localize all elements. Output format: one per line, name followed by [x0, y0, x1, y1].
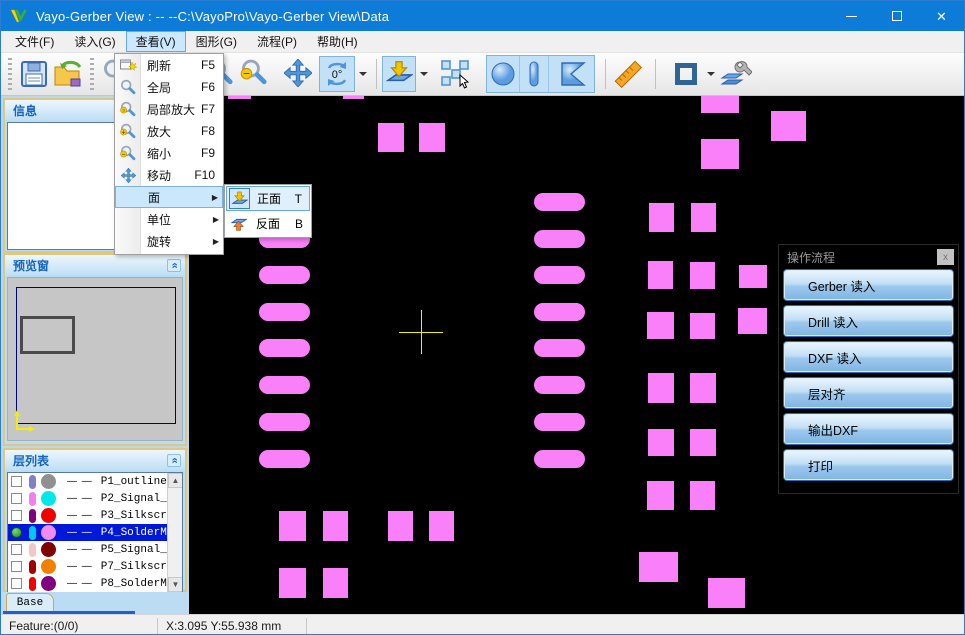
svg-text:0°: 0°	[332, 69, 343, 81]
svg-text:▫: ▫	[122, 107, 124, 114]
menu-item-面[interactable]: 面 ▶	[115, 186, 223, 208]
menu-item-单位[interactable]: 单位 ▶	[115, 208, 223, 230]
layer-row[interactable]: — — P1_outline	[8, 473, 182, 490]
layer-checkbox[interactable]	[11, 561, 22, 572]
layer-checkbox[interactable]	[11, 493, 22, 504]
menu-item-shortcut: F7	[201, 102, 215, 116]
layer-color-pill	[29, 577, 36, 591]
rotate-icon: 0°	[322, 60, 352, 88]
menu-item-label: 旋转	[147, 233, 171, 250]
layer-color-pill	[29, 543, 36, 557]
scroll-down-icon[interactable]: ▼	[168, 577, 183, 592]
ruler-icon	[612, 58, 644, 90]
gerber-pad-oval	[534, 230, 585, 248]
menu-item-shortcut: F8	[201, 124, 215, 138]
gerber-pad-square	[343, 96, 364, 99]
layer-name: P5_Signal_	[101, 544, 167, 556]
gerber-pad-square	[648, 429, 674, 456]
menu-item-缩小[interactable]: − 缩小 F9	[115, 142, 223, 164]
layer-wrench-icon	[720, 59, 752, 89]
layer-color-dot	[41, 474, 56, 489]
layer-list-scrollbar[interactable]: ▲ ▼	[167, 473, 182, 592]
gerber-pad-oval	[534, 303, 585, 321]
gerber-pad-square	[378, 123, 404, 152]
gerber-pad-square	[639, 552, 678, 582]
layer-name: P8_SolderM	[101, 578, 167, 590]
app-logo-icon	[9, 9, 28, 24]
flip-front-icon	[229, 188, 250, 209]
gerber-pad-square	[647, 481, 674, 510]
preview-viewport[interactable]	[7, 277, 183, 441]
toolbar-separator	[655, 59, 656, 89]
gerber-pad-square	[771, 111, 806, 141]
flow-panel-close-icon: x	[943, 252, 948, 263]
window-title: Vayo-Gerber View : -- --C:\VayoPro\Vayo-…	[36, 9, 389, 24]
layer-color-dot	[41, 542, 56, 557]
menu-item-label: 全局	[147, 79, 171, 96]
gerber-pad-square	[690, 262, 715, 289]
layer-color-pill	[29, 509, 36, 523]
layer-checkbox[interactable]	[11, 544, 22, 555]
layer-color-dot	[41, 525, 56, 540]
gerber-pad-oval	[259, 266, 310, 284]
info-panel-title: 信息	[13, 102, 37, 119]
gerber-pad-square	[708, 578, 745, 608]
svg-text:+: +	[122, 129, 126, 136]
gerber-pad-oval	[259, 450, 310, 468]
collapse-chevron-icon[interactable]: «	[167, 454, 181, 467]
layer-row[interactable]: — — P3_Silkscr	[8, 507, 182, 524]
zoom-fit-icon	[115, 79, 141, 95]
toolbar-separator	[376, 59, 377, 89]
layer-checkbox[interactable]	[11, 578, 22, 589]
flow-buttons: Gerber 读入Drill 读入DXF 读入层对齐输出DXF打印	[779, 269, 958, 481]
menu-item-全局[interactable]: 全局 F6	[115, 76, 223, 98]
flow-button-DXF 读入[interactable]: DXF 读入	[783, 341, 954, 373]
statusbar: Feature:(0/0) X:3.095 Y:55.938 mm	[1, 614, 964, 635]
layer-line-sample: — —	[67, 527, 93, 538]
menubar-item[interactable]: 读入(G)	[64, 31, 125, 52]
layer-row[interactable]: — — P7_Silkscr	[8, 558, 182, 575]
layer-row[interactable]: — — P4_SolderM	[8, 524, 182, 541]
preview-panel-header: 预览窗 «	[5, 255, 185, 275]
statusbar-separator	[157, 618, 158, 634]
menubar-item[interactable]: 文件(F)	[5, 31, 64, 52]
measure-button[interactable]	[611, 56, 645, 92]
gerber-pad-square	[690, 313, 715, 339]
layer-name: P3_Silkscr	[101, 510, 167, 522]
gerber-pad-oval	[534, 193, 585, 211]
gerber-pad-oval	[534, 450, 585, 468]
gerber-pad-square	[739, 265, 767, 288]
shape-tool-group	[486, 55, 595, 93]
menu-item-移动[interactable]: 移动 F10	[115, 164, 223, 186]
submenu-arrow-icon: ▶	[213, 215, 219, 224]
flow-button-层对齐[interactable]: 层对齐	[783, 377, 954, 409]
flow-button-Gerber 读入[interactable]: Gerber 读入	[783, 269, 954, 301]
view-menu: 刷新 F5 全局 F6 ▫ 局部放大 F7 + 放大 F8 − 缩小 F9 移动…	[114, 53, 224, 255]
selection-icon	[440, 59, 470, 89]
zoom-region-icon: ▫	[115, 101, 141, 117]
refresh-icon	[115, 58, 141, 73]
feature-count: Feature:(0/0)	[9, 619, 157, 633]
menubar-item[interactable]: 图形(G)	[186, 31, 247, 52]
gerber-pad-square	[649, 203, 674, 232]
menu-item-刷新[interactable]: 刷新 F5	[115, 54, 223, 76]
submenu-item-正面[interactable]: 正面 T	[226, 186, 310, 211]
gerber-pad-square	[279, 568, 306, 598]
gerber-pad-oval	[534, 339, 585, 357]
frame-tool-button[interactable]	[669, 56, 703, 92]
rotate-dropdown-caret[interactable]	[359, 72, 367, 76]
close-icon: ✕	[936, 10, 947, 23]
gerber-pad-square	[323, 568, 348, 598]
gerber-pad-oval	[534, 413, 585, 431]
svg-text:−: −	[243, 66, 250, 80]
gerber-pad-square	[690, 429, 716, 456]
gerber-pad-square	[323, 511, 348, 541]
close-button[interactable]: ✕	[919, 1, 964, 31]
preview-view-rect[interactable]	[20, 316, 75, 354]
gerber-pad-oval	[534, 266, 585, 284]
pan-icon	[284, 59, 312, 90]
gerber-pad-oval	[259, 303, 310, 321]
layer-list: — — P1_outline — — P2_Signal_ — — P3_Sil…	[7, 472, 183, 593]
maximize-icon	[892, 11, 902, 21]
gerber-pad-square	[701, 139, 739, 169]
gerber-pad-oval	[259, 339, 310, 357]
flip-side-button[interactable]	[382, 56, 416, 92]
open-folder-icon	[52, 59, 84, 89]
flow-button-Drill 读入[interactable]: Drill 读入	[783, 305, 954, 337]
flow-panel-header: 操作流程 x	[779, 245, 958, 267]
layer-color-dot	[41, 508, 56, 523]
menu-item-label: 缩小	[147, 145, 171, 162]
layers-panel-title: 层列表	[13, 452, 49, 469]
select-mode-button[interactable]	[438, 56, 472, 92]
toolbar-separator	[605, 59, 606, 89]
circle-tool-icon	[490, 61, 516, 87]
titlebar: Vayo-Gerber View : -- --C:\VayoPro\Vayo-…	[1, 1, 964, 31]
tab-base-label: Base	[17, 597, 43, 609]
crosshair-cursor	[421, 310, 422, 354]
face-submenu: 正面 T 反面 B	[224, 184, 312, 238]
menu-item-shortcut: F5	[201, 58, 215, 72]
menu-item-shortcut: F10	[194, 168, 215, 182]
menu-item-shortcut: F9	[201, 146, 215, 160]
layer-color-pill	[29, 475, 36, 489]
layer-color-pill	[29, 526, 36, 540]
gerber-pad-oval	[259, 376, 310, 394]
layer-color-pill	[29, 560, 36, 574]
gerber-pad-square	[738, 308, 767, 334]
menubar: 文件(F)读入(G)查看(V)图形(G)流程(P)帮助(H)	[1, 31, 964, 53]
collapse-chevron-icon[interactable]: «	[167, 259, 181, 272]
layer-color-dot	[41, 491, 56, 506]
flip-front-icon	[385, 60, 413, 88]
layer-setup-button[interactable]	[719, 56, 753, 92]
flow-panel: 操作流程 x Gerber 读入Drill 读入DXF 读入层对齐输出DXF打印	[778, 244, 959, 494]
axis-origin-icon	[12, 410, 36, 434]
square-outline-icon	[675, 63, 697, 85]
menubar-item[interactable]: 帮助(H)	[307, 31, 368, 52]
menubar-item[interactable]: 流程(P)	[247, 31, 307, 52]
save-icon	[19, 59, 49, 89]
layer-line-sample: — —	[67, 510, 93, 521]
save-button[interactable]	[17, 56, 51, 92]
menubar-item[interactable]: 查看(V)	[126, 31, 186, 52]
line-tool-button[interactable]	[520, 56, 549, 92]
submenu-item-label: 反面	[256, 215, 280, 232]
gerber-pad-square	[279, 511, 306, 541]
menu-item-label: 放大	[147, 123, 171, 140]
cursor-coordinates: X:3.095 Y:55.938 mm	[166, 619, 306, 633]
layer-visible-dot[interactable]	[11, 527, 22, 538]
gerber-pad-square	[648, 373, 674, 403]
gerber-pad-oval	[534, 376, 585, 394]
toolbar-drag-handle[interactable]	[8, 58, 12, 90]
pan-icon	[115, 168, 141, 183]
layers-panel-header: 层列表 «	[5, 450, 185, 470]
layer-line-sample: — —	[67, 476, 93, 487]
flow-button-打印[interactable]: 打印	[783, 449, 954, 481]
gerber-pad-square	[647, 312, 674, 339]
flow-panel-close-button[interactable]: x	[937, 249, 954, 265]
circle-tool-button[interactable]	[487, 56, 520, 92]
polygon-tool-icon	[557, 61, 587, 87]
flip-dropdown-caret[interactable]	[420, 72, 428, 76]
zoom-out-icon: −	[240, 58, 267, 90]
base-tab-strip: Base	[1, 592, 189, 614]
zoom-in-icon: +	[115, 123, 141, 139]
rotate-button[interactable]: 0°	[319, 56, 355, 92]
menu-item-局部放大[interactable]: ▫ 局部放大 F7	[115, 98, 223, 120]
polygon-tool-button[interactable]	[549, 56, 594, 92]
gerber-pad-square	[648, 261, 673, 289]
layer-color-dot	[41, 576, 56, 591]
menu-item-旋转[interactable]: 旋转 ▶	[115, 230, 223, 252]
tab-base[interactable]: Base	[6, 593, 54, 611]
layer-color-dot	[41, 559, 56, 574]
pan-button[interactable]	[281, 56, 315, 92]
gerber-pad-square	[228, 96, 251, 99]
layer-name: P4_SolderM	[101, 527, 167, 539]
layer-line-sample: — —	[67, 544, 93, 555]
layer-checkbox[interactable]	[11, 476, 22, 487]
submenu-arrow-icon: ▶	[212, 193, 218, 202]
flow-panel-title: 操作流程	[787, 249, 835, 266]
gerber-pad-square	[690, 481, 715, 510]
flow-button-输出DXF[interactable]: 输出DXF	[783, 413, 954, 445]
gerber-pad-square	[691, 203, 716, 232]
menu-item-shortcut: F6	[201, 80, 215, 94]
line-tool-icon	[528, 61, 540, 87]
scroll-up-icon[interactable]: ▲	[168, 473, 183, 488]
zoom-out-icon: −	[115, 145, 141, 161]
gerber-pad-oval	[259, 413, 310, 431]
preview-panel-title: 预览窗	[13, 257, 49, 274]
maximize-button[interactable]	[874, 1, 919, 31]
zoom-out-button[interactable]: −	[237, 56, 271, 92]
menu-item-放大[interactable]: + 放大 F8	[115, 120, 223, 142]
gerber-pad-square	[419, 123, 445, 152]
submenu-item-label: 正面	[257, 190, 281, 207]
layer-name: P2_Signal_	[101, 493, 167, 505]
layer-line-sample: — —	[67, 493, 93, 504]
submenu-item-shortcut: T	[295, 192, 302, 206]
app-window: Vayo-Gerber View : -- --C:\VayoPro\Vayo-…	[0, 0, 965, 635]
menu-item-label: 单位	[147, 211, 171, 228]
open-data-button[interactable]	[51, 56, 85, 92]
layer-row[interactable]: — — P5_Signal_	[8, 541, 182, 558]
submenu-item-shortcut: B	[295, 217, 303, 231]
toolbar-drag-handle[interactable]	[90, 58, 94, 90]
preview-panel: 预览窗 «	[3, 253, 187, 446]
flip-back-icon	[228, 213, 249, 234]
layers-panel: 层列表 « — — P1_outline — — P2_Signal_ — — …	[3, 448, 187, 592]
submenu-arrow-icon: ▶	[213, 237, 219, 246]
minimize-button[interactable]	[829, 1, 874, 31]
layer-name: P7_Silkscr	[101, 561, 167, 573]
layer-color-pill	[29, 492, 36, 506]
layer-line-sample: — —	[67, 561, 93, 572]
preview-board-outline	[16, 287, 176, 424]
gerber-pad-square	[388, 511, 413, 541]
layer-row[interactable]: — — P2_Signal_	[8, 490, 182, 507]
menu-item-label: 刷新	[147, 57, 171, 74]
menu-item-label: 局部放大	[147, 101, 195, 118]
layer-name: P1_outline	[101, 476, 167, 488]
submenu-item-反面[interactable]: 反面 B	[226, 211, 310, 236]
menu-item-label: 面	[148, 189, 160, 206]
gerber-pad-square	[701, 96, 739, 113]
layer-checkbox[interactable]	[11, 510, 22, 521]
minimize-icon	[846, 16, 857, 17]
frame-dropdown-caret[interactable]	[707, 72, 715, 76]
svg-text:−: −	[122, 151, 126, 158]
statusbar-separator	[306, 618, 307, 634]
gerber-pad-square	[690, 373, 716, 403]
layer-line-sample: — —	[67, 578, 93, 589]
gerber-pad-square	[429, 511, 454, 541]
layer-row[interactable]: — — P8_SolderM	[8, 575, 182, 592]
menu-item-label: 移动	[147, 167, 171, 184]
